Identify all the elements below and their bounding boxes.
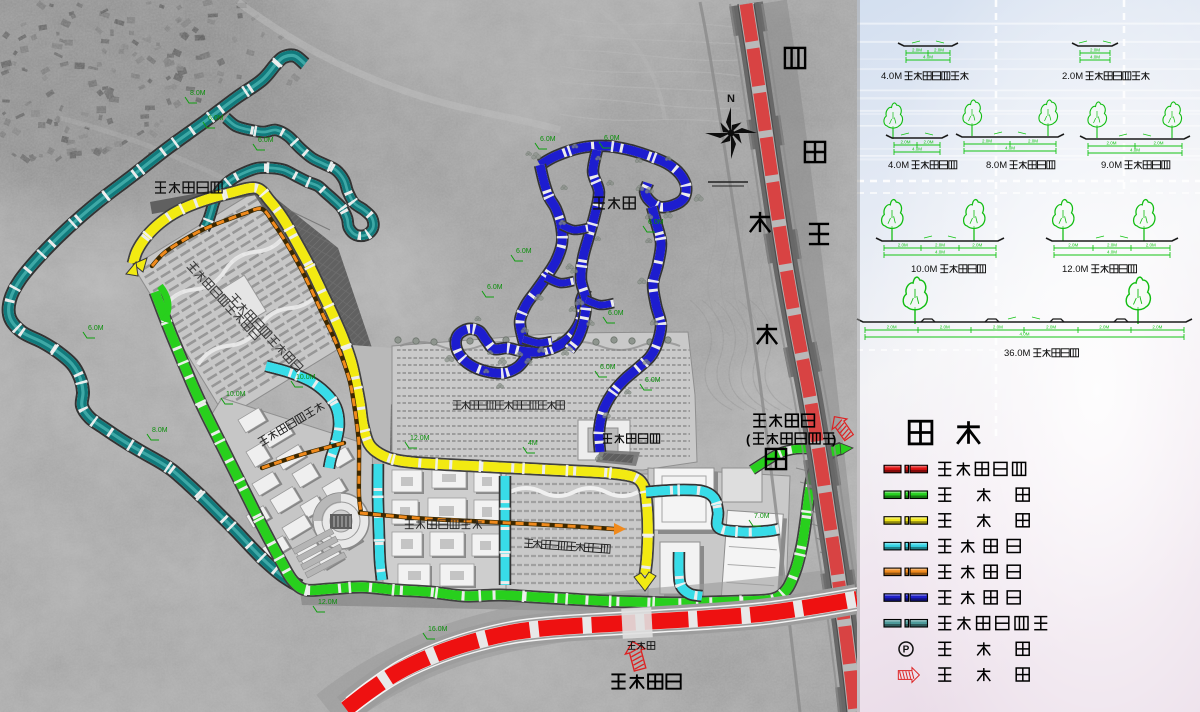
svg-text:2.0M: 2.0M bbox=[935, 243, 945, 248]
svg-text:(: ( bbox=[746, 432, 751, 447]
svg-text:4.0M: 4.0M bbox=[888, 160, 909, 171]
svg-text:7.0M: 7.0M bbox=[754, 513, 770, 520]
svg-text:2.0M: 2.0M bbox=[923, 140, 933, 145]
svg-text:2.0M: 2.0M bbox=[1028, 139, 1038, 144]
svg-text:2.0M: 2.0M bbox=[1106, 141, 1116, 146]
svg-text:6.0M: 6.0M bbox=[604, 135, 620, 142]
svg-text:4.0M: 4.0M bbox=[923, 55, 933, 60]
svg-text:8.0M: 8.0M bbox=[986, 160, 1007, 171]
svg-text:6.0M: 6.0M bbox=[516, 248, 532, 255]
svg-text:2.0M: 2.0M bbox=[1046, 325, 1056, 330]
svg-text:4.0M: 4.0M bbox=[1090, 55, 1100, 60]
svg-text:2.0M: 2.0M bbox=[1068, 243, 1078, 248]
svg-text:12.0M: 12.0M bbox=[1062, 264, 1088, 275]
svg-text:6.0M: 6.0M bbox=[208, 115, 224, 122]
svg-text:16.0M: 16.0M bbox=[428, 626, 448, 633]
svg-text:2.0M: 2.0M bbox=[1090, 48, 1100, 53]
svg-text:4.0M: 4.0M bbox=[881, 71, 902, 82]
svg-text:10.0M: 10.0M bbox=[911, 264, 937, 275]
svg-text:2.0M: 2.0M bbox=[900, 140, 910, 145]
svg-text:2.0M: 2.0M bbox=[934, 48, 944, 53]
svg-text:6.0M: 6.0M bbox=[648, 219, 664, 226]
svg-text:2.0M: 2.0M bbox=[1153, 141, 1163, 146]
svg-text:6.0M: 6.0M bbox=[88, 325, 104, 332]
svg-text:2.0M: 2.0M bbox=[887, 325, 897, 330]
svg-text:2.0M: 2.0M bbox=[1152, 325, 1162, 330]
svg-text:4.0M: 4.0M bbox=[1107, 250, 1117, 255]
svg-text:4.0M: 4.0M bbox=[935, 250, 945, 255]
svg-text:2.0M: 2.0M bbox=[1107, 243, 1117, 248]
svg-text:10.0M: 10.0M bbox=[226, 391, 246, 398]
svg-text:6.0M: 6.0M bbox=[645, 377, 661, 384]
svg-text:2.0M: 2.0M bbox=[993, 325, 1003, 330]
svg-text:8.0M: 8.0M bbox=[190, 90, 206, 97]
svg-text:4.0M: 4.0M bbox=[1019, 332, 1029, 337]
svg-text:N: N bbox=[727, 93, 735, 105]
svg-text:2.0M: 2.0M bbox=[898, 243, 908, 248]
svg-text:6.0M: 6.0M bbox=[258, 137, 274, 144]
svg-text:4.0M: 4.0M bbox=[1005, 146, 1015, 151]
svg-text:4.0M: 4.0M bbox=[912, 147, 922, 152]
svg-text:2.0M: 2.0M bbox=[912, 48, 922, 53]
svg-text:4.0M: 4.0M bbox=[1130, 148, 1140, 153]
svg-text:9.0M: 9.0M bbox=[1101, 160, 1122, 171]
svg-text:2.0M: 2.0M bbox=[982, 139, 992, 144]
svg-text:36.0M: 36.0M bbox=[1004, 348, 1030, 359]
svg-text:8.0M: 8.0M bbox=[152, 427, 168, 434]
svg-text:2.0M: 2.0M bbox=[1146, 243, 1156, 248]
svg-text:12.0M: 12.0M bbox=[318, 599, 338, 606]
svg-text:6.0M: 6.0M bbox=[600, 364, 616, 371]
svg-text:2.0M: 2.0M bbox=[1099, 325, 1109, 330]
svg-text:): ) bbox=[832, 432, 836, 447]
svg-text:10.0M: 10.0M bbox=[296, 374, 316, 381]
svg-text:4M: 4M bbox=[528, 440, 538, 447]
svg-text:6.0M: 6.0M bbox=[540, 136, 556, 143]
svg-text:2.0M: 2.0M bbox=[972, 243, 982, 248]
svg-text:P: P bbox=[903, 644, 910, 655]
svg-text:2.0M: 2.0M bbox=[1062, 71, 1083, 82]
svg-text:2.0M: 2.0M bbox=[940, 325, 950, 330]
svg-text:6.0M: 6.0M bbox=[608, 310, 624, 317]
svg-text:12.0M: 12.0M bbox=[410, 435, 430, 442]
svg-text:6.0M: 6.0M bbox=[487, 284, 503, 291]
